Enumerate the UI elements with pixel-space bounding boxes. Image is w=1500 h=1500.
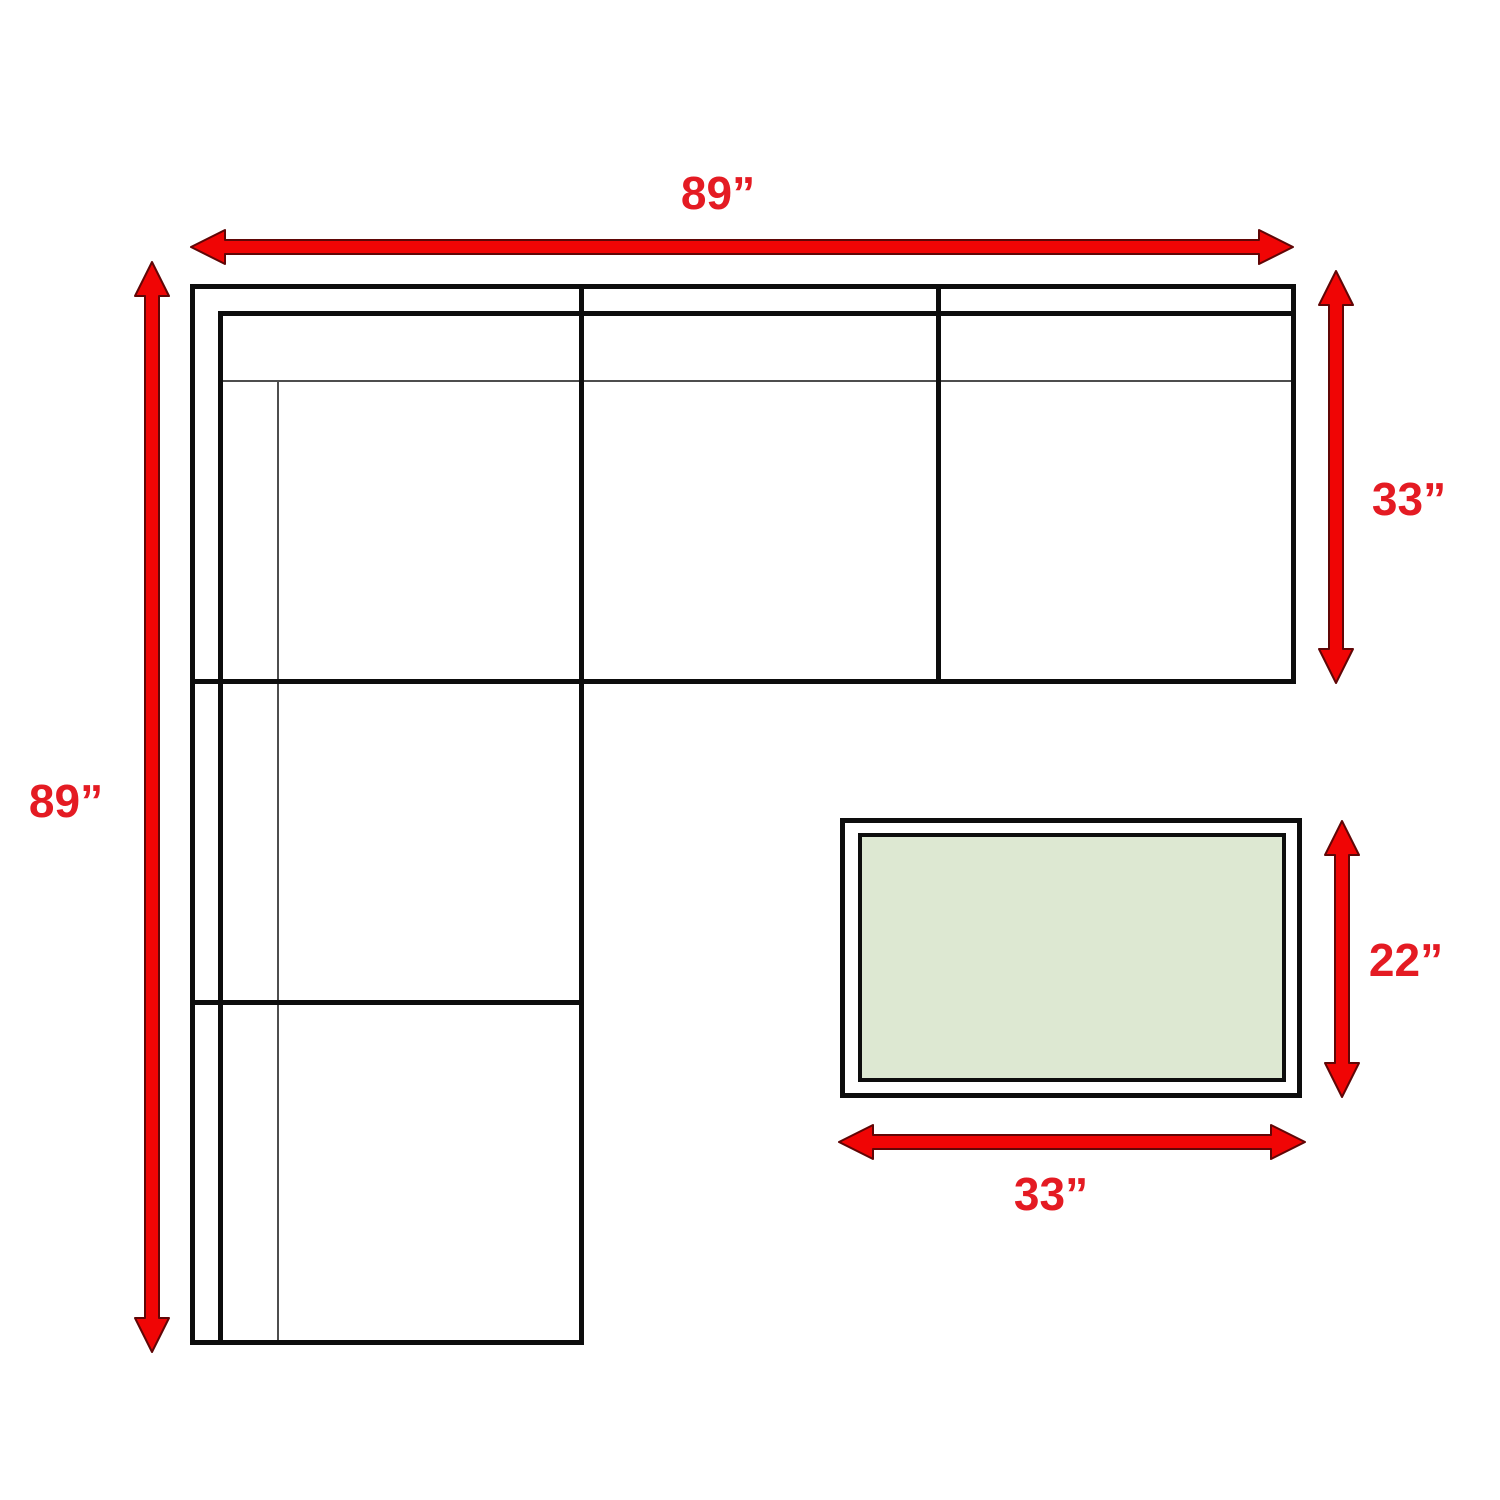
sofa-inner-top-line (218, 311, 1296, 316)
coffee-table-outline (840, 818, 1302, 1098)
dimension-arrow-sofa-depth (1316, 270, 1356, 684)
dimension-label-table-width: 33” (1014, 1171, 1088, 1217)
sofa-left-cushion-line (277, 380, 279, 1345)
dimension-label-sofa-width: 89” (681, 170, 755, 216)
sofa-outer-left-line (190, 284, 195, 1345)
arrow-shape (191, 230, 1293, 264)
sofa-section-divider-left (579, 284, 584, 1345)
arrow-shape (839, 1125, 1305, 1159)
sofa-inner-left-line (218, 311, 223, 1345)
sofa-section-divider-right (936, 284, 941, 684)
coffee-table-top (858, 833, 1286, 1082)
sofa-back-cushion-line (218, 380, 1293, 382)
dimension-label-table-depth: 22” (1369, 937, 1443, 983)
sofa-bottom-edge-line (190, 1340, 584, 1345)
dimension-label-sofa-depth: 33” (1372, 476, 1446, 522)
dimension-arrow-table-width (838, 1122, 1306, 1162)
sectional-sofa-dimension-diagram: 89” 89” 33” 22” 33” (0, 0, 1500, 1500)
sofa-left-column-divider (190, 1000, 584, 1005)
sofa-top-row-bottom-line (190, 679, 1296, 684)
sofa-outer-top-line (190, 284, 1296, 289)
dimension-label-sofa-length: 89” (29, 778, 103, 824)
dimension-arrow-sofa-length (132, 261, 172, 1353)
arrow-shape (135, 262, 169, 1352)
arrow-shape (1325, 821, 1359, 1097)
dimension-arrow-table-depth (1322, 820, 1362, 1098)
sofa-right-edge-line (1291, 284, 1296, 684)
arrow-shape (1319, 271, 1353, 683)
dimension-arrow-sofa-width (190, 227, 1294, 267)
